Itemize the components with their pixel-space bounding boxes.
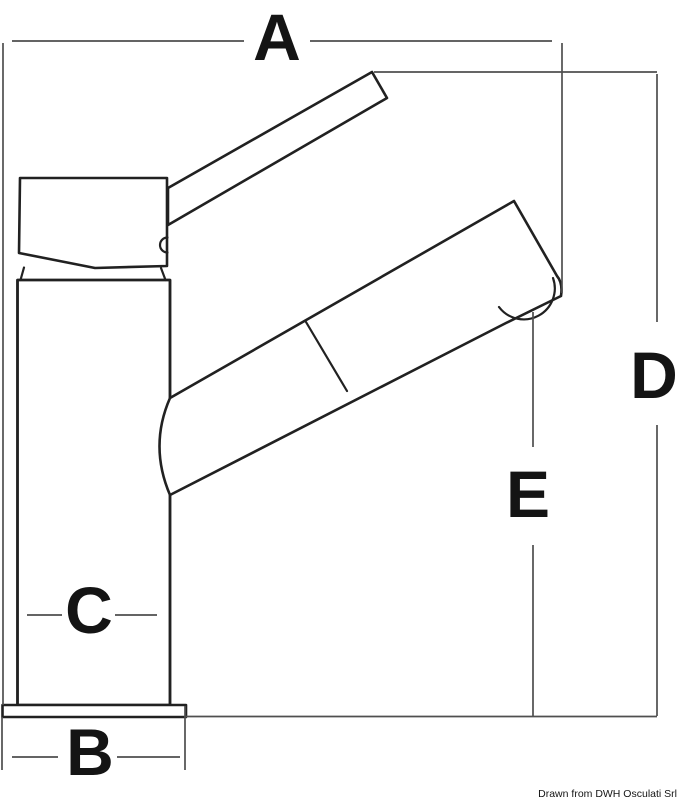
label-a: A (253, 0, 301, 74)
faucet-spout (160, 201, 562, 495)
label-b: B (66, 715, 114, 789)
label-e: E (506, 457, 550, 531)
faucet-dimension-diagram: A D E C B Drawn from DWH Osculati Srl (0, 0, 678, 800)
technical-drawing-canvas: A D E C B Drawn from DWH Osculati Srl (0, 0, 678, 800)
faucet-cartridge-block (19, 178, 167, 268)
credit-text: Drawn from DWH Osculati Srl (538, 788, 677, 800)
label-d: D (630, 338, 678, 412)
cartridge-neck-lines (21, 268, 166, 281)
label-c: C (65, 573, 113, 647)
faucet-handle-lever (168, 72, 387, 225)
